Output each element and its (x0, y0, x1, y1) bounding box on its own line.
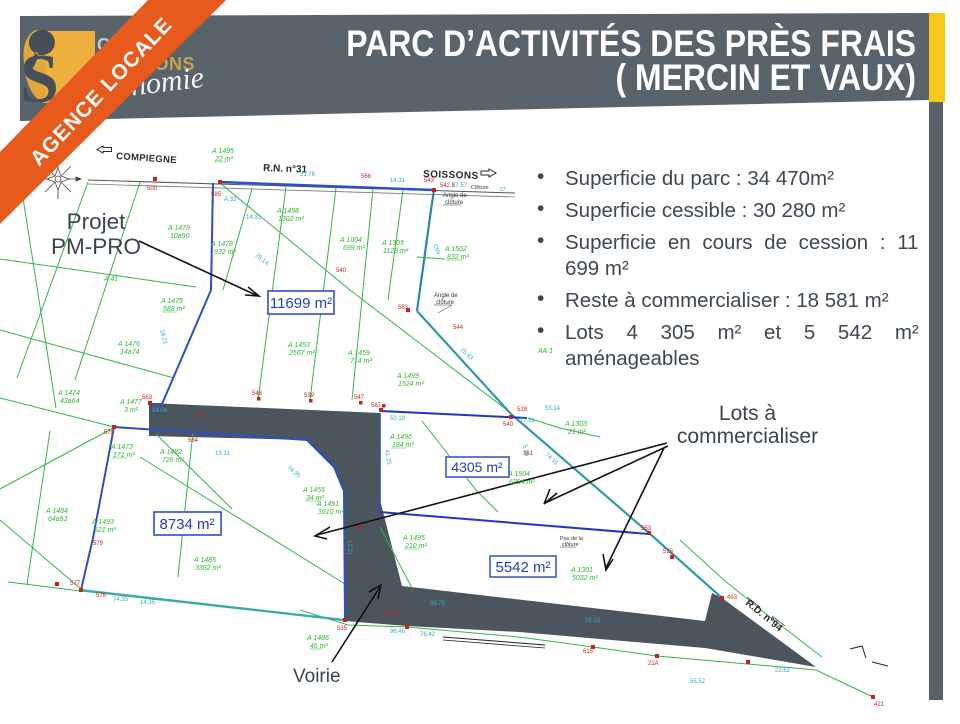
svg-text:535: 535 (337, 626, 348, 632)
svg-text:A 1305: A 1305 (381, 240, 404, 247)
svg-text:A 1477: A 1477 (119, 399, 143, 406)
svg-text:2567 m²: 2567 m² (288, 350, 315, 357)
svg-text:615: 615 (583, 649, 594, 655)
svg-text:A 1502: A 1502 (444, 246, 467, 253)
svg-text:528: 528 (517, 407, 528, 413)
svg-text:A 1301: A 1301 (570, 567, 593, 574)
svg-text:11699 m²: 11699 m² (270, 295, 332, 312)
svg-text:A 1496: A 1496 (389, 434, 412, 441)
svg-text:12.31: 12.31 (346, 540, 352, 556)
svg-text:53.14: 53.14 (545, 406, 561, 412)
svg-text:579: 579 (93, 541, 104, 547)
svg-text:56.16: 56.16 (385, 611, 401, 617)
svg-text:726 m²: 726 m² (162, 457, 184, 464)
svg-text:14a74: 14a74 (120, 349, 140, 356)
svg-text:A 1485: A 1485 (193, 557, 216, 564)
svg-text:50.19: 50.19 (390, 416, 406, 422)
svg-text:A 1303: A 1303 (564, 421, 587, 428)
svg-text:577: 577 (70, 581, 81, 587)
svg-text:55.52: 55.52 (690, 679, 706, 685)
svg-text:A 1459: A 1459 (347, 350, 370, 357)
svg-text:43a64: 43a64 (60, 398, 80, 405)
svg-text:493: 493 (727, 595, 738, 601)
svg-text:AGENCE LOCALE: AGENCE LOCALE (26, 13, 177, 170)
svg-text:A 1004: A 1004 (339, 237, 362, 244)
svg-text:A 1498: A 1498 (276, 208, 299, 215)
svg-text:A 1453: A 1453 (287, 342, 310, 349)
svg-text:A 1476: A 1476 (117, 341, 140, 348)
svg-text:74.35: 74.35 (286, 465, 302, 480)
svg-text:31.76: 31.76 (300, 172, 316, 178)
svg-text:A 1455: A 1455 (302, 487, 325, 494)
svg-text:Angle de: Angle de (443, 193, 467, 199)
svg-text:77.91: 77.91 (520, 418, 536, 424)
svg-text:3 m²: 3 m² (124, 407, 139, 414)
svg-text:587: 587 (371, 403, 382, 409)
svg-text:544: 544 (453, 325, 464, 331)
svg-text:583: 583 (398, 305, 409, 311)
svg-text:A 1484: A 1484 (45, 508, 68, 515)
svg-text:41.25: 41.25 (383, 449, 392, 465)
svg-text:64a53: 64a53 (48, 516, 68, 523)
svg-text:Clôt: Clôt (431, 244, 441, 256)
svg-text:Clôture: Clôture (471, 185, 489, 191)
svg-text:8734 m²: 8734 m² (159, 516, 214, 533)
svg-text:A 1499: A 1499 (396, 373, 419, 380)
svg-text:A 1495: A 1495 (402, 535, 425, 542)
svg-text:6394 m²: 6394 m² (509, 479, 535, 486)
svg-text:579: 579 (104, 430, 115, 436)
svg-text:21 m²: 21 m² (567, 429, 587, 436)
svg-text:18.21: 18.21 (158, 329, 168, 346)
svg-text:699 m²: 699 m² (343, 245, 365, 252)
svg-text:543: 543 (424, 178, 435, 184)
svg-text:5542 m²: 5542 m² (495, 559, 550, 576)
svg-text:5032 m²: 5032 m² (572, 575, 598, 582)
svg-text:A 1474: A 1474 (57, 390, 80, 397)
svg-text:14.35: 14.35 (140, 600, 156, 606)
svg-text:A 1482: A 1482 (159, 449, 182, 456)
svg-text:A 41: A 41 (103, 276, 118, 283)
svg-text:568: 568 (361, 174, 372, 180)
svg-text:421: 421 (874, 702, 885, 708)
svg-text:34.04: 34.04 (152, 408, 168, 414)
svg-text:A 1493: A 1493 (91, 519, 114, 526)
svg-text:1128 m²: 1128 m² (383, 248, 409, 255)
svg-text:4305 m²: 4305 m² (451, 459, 503, 475)
svg-text:98.75: 98.75 (430, 601, 446, 607)
svg-text:584: 584 (188, 438, 199, 444)
svg-text:58.33: 58.33 (585, 618, 601, 624)
svg-text:553: 553 (641, 526, 652, 532)
svg-text:74.35: 74.35 (113, 597, 129, 603)
svg-text:1524 m²: 1524 m² (398, 381, 424, 388)
svg-text:578: 578 (96, 593, 107, 599)
svg-text:547: 547 (354, 395, 365, 401)
svg-text:21A: 21A (648, 661, 659, 667)
svg-text:540: 540 (503, 422, 514, 428)
svg-text:22.52: 22.52 (775, 668, 791, 674)
svg-text:96.46: 96.46 (390, 629, 406, 635)
svg-text:523: 523 (663, 549, 674, 555)
svg-text:521 m²: 521 m² (94, 527, 116, 534)
svg-text:546: 546 (252, 391, 263, 397)
svg-text:714 m²: 714 m² (350, 358, 372, 365)
svg-text:539: 539 (304, 393, 315, 399)
svg-text:14.31: 14.31 (390, 178, 406, 184)
svg-text:544: 544 (194, 413, 205, 419)
svg-text:27: 27 (500, 187, 506, 193)
svg-text:A 1473: A 1473 (110, 444, 133, 451)
svg-text:Angle de: Angle de (434, 293, 458, 299)
svg-text:19.31: 19.31 (215, 451, 231, 457)
svg-text:76.42: 76.42 (420, 632, 436, 638)
svg-text:540: 540 (336, 268, 347, 274)
svg-text:3382 m²: 3382 m² (195, 565, 221, 572)
svg-text:27.57: 27.57 (452, 183, 468, 189)
svg-text:A 1486: A 1486 (306, 635, 329, 642)
svg-text:567: 567 (355, 526, 366, 532)
svg-text:A 1504: A 1504 (507, 471, 530, 478)
svg-text:563: 563 (142, 395, 153, 401)
svg-text:A 1491: A 1491 (316, 501, 339, 508)
svg-text:A 1475: A 1475 (160, 298, 183, 305)
svg-text:1302 m²: 1302 m² (278, 216, 304, 223)
svg-text:3610 m²: 3610 m² (318, 509, 344, 516)
